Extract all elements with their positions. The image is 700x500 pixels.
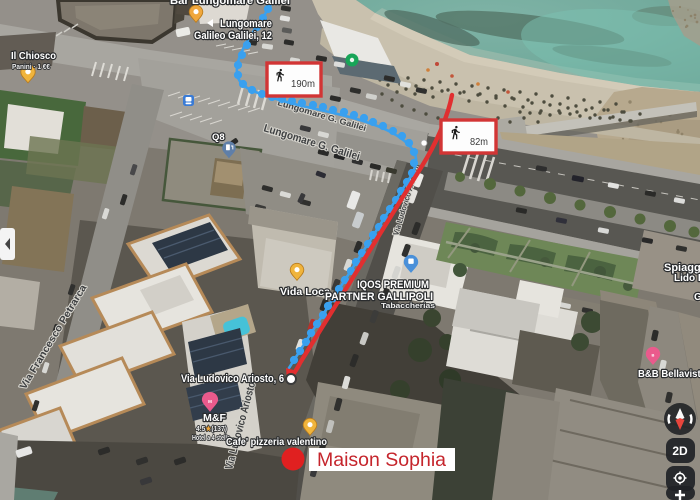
svg-text:190m: 190m xyxy=(291,78,315,90)
svg-text:Panini · 1 €€: Panini · 1 €€ xyxy=(12,62,51,71)
svg-text:M&F: M&F xyxy=(203,413,226,424)
svg-text:Lungomare: Lungomare xyxy=(220,18,272,30)
svg-text:Maison Sophia: Maison Sophia xyxy=(317,449,446,471)
svg-text:M: M xyxy=(208,399,212,404)
svg-text:82m: 82m xyxy=(470,136,488,148)
svg-text:IQOS PREMIUM: IQOS PREMIUM xyxy=(357,279,429,291)
svg-text:Bar Lungomare Galilei: Bar Lungomare Galilei xyxy=(170,0,290,7)
svg-text:2D: 2D xyxy=(672,444,688,458)
svg-text:4.5★(137): 4.5★(137) xyxy=(196,424,227,433)
svg-text:Galileo Galilei, 12: Galileo Galilei, 12 xyxy=(194,30,272,42)
svg-text:Cafe' pizzeria valentino: Cafe' pizzeria valentino xyxy=(226,436,327,448)
svg-text:B&B Bellavista: B&B Bellavista xyxy=(638,368,700,380)
svg-text:Vida Loca: Vida Loca xyxy=(280,286,330,298)
svg-text:Tabaccherias: Tabaccherias xyxy=(381,301,435,310)
svg-text:B: B xyxy=(652,352,655,357)
svg-text:Hotel a 4 stelle: Hotel a 4 stelle xyxy=(192,433,230,442)
svg-text:Lido B: Lido B xyxy=(674,273,700,284)
svg-text:Via Ludovico Ariosto, 6: Via Ludovico Ariosto, 6 xyxy=(181,373,284,385)
svg-text:G: G xyxy=(694,292,700,303)
svg-text:Il Chiosco: Il Chiosco xyxy=(11,50,56,62)
svg-text:Q8: Q8 xyxy=(212,132,225,143)
